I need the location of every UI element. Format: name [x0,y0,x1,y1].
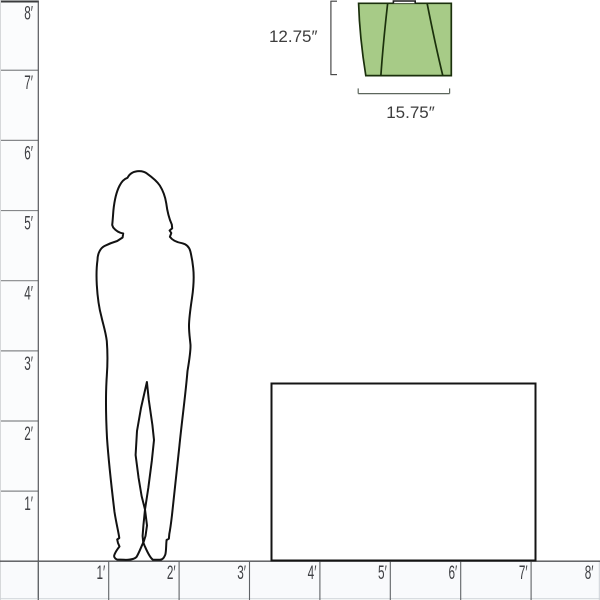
svg-text:5′: 5′ [378,563,387,583]
svg-text:5′: 5′ [24,214,33,234]
svg-text:6′: 6′ [448,563,457,583]
svg-text:3′: 3′ [237,563,246,583]
svg-text:2′: 2′ [167,563,176,583]
svg-text:1′: 1′ [24,494,33,514]
svg-text:1′: 1′ [96,563,105,583]
svg-text:6′: 6′ [24,144,33,164]
svg-text:8′: 8′ [585,563,594,583]
svg-text:8′: 8′ [24,4,33,24]
svg-text:7′: 7′ [24,74,33,94]
svg-text:7′: 7′ [519,563,528,583]
svg-text:12.75″: 12.75″ [269,27,318,46]
svg-text:4′: 4′ [24,284,33,304]
svg-text:3′: 3′ [24,354,33,374]
svg-text:2′: 2′ [24,424,33,444]
svg-text:15.75″: 15.75″ [386,103,435,122]
svg-text:4′: 4′ [308,563,317,583]
